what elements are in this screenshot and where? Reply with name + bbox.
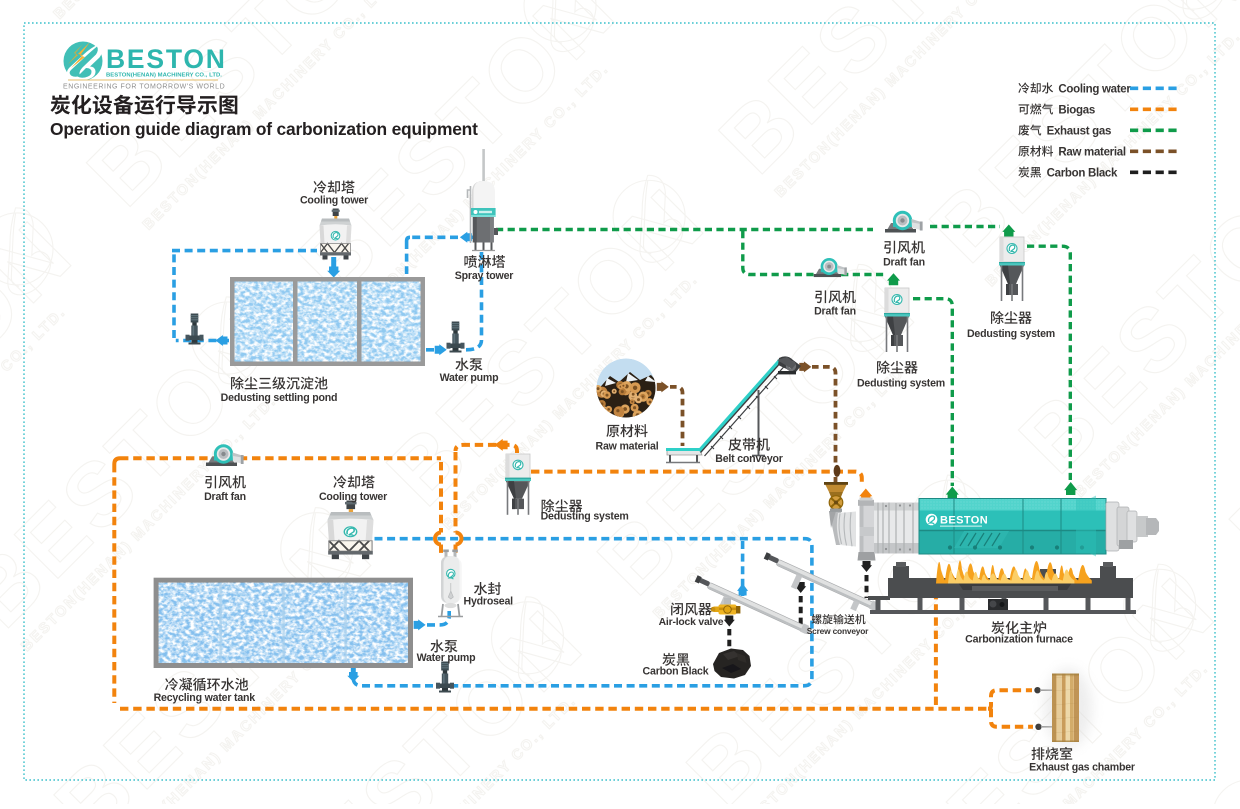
svg-text:Exhaust gas: Exhaust gas	[1047, 126, 1111, 138]
svg-text:Carbonization furnace: Carbonization furnace	[965, 634, 1073, 646]
svg-text:Water pump: Water pump	[440, 372, 500, 384]
svg-text:Recycling water tank: Recycling water tank	[154, 692, 256, 704]
svg-text:Cooling tower: Cooling tower	[319, 491, 387, 503]
svg-text:BESTON(HENAN) MACHINERY CO., L: BESTON(HENAN) MACHINERY CO., LTD.	[106, 73, 222, 79]
svg-text:Dedusting settling pond: Dedusting settling pond	[221, 392, 338, 404]
svg-text:Belt conveyor: Belt conveyor	[715, 453, 783, 465]
svg-text:BESTON: BESTON	[940, 515, 988, 527]
svg-text:Raw material: Raw material	[596, 441, 659, 453]
svg-text:Screw conveyor: Screw conveyor	[807, 626, 869, 636]
svg-text:Exhaust gas chamber: Exhaust gas chamber	[1029, 761, 1135, 773]
svg-text:Air-lock valve: Air-lock valve	[659, 617, 724, 628]
svg-text:Cooling water: Cooling water	[1058, 84, 1131, 96]
svg-text:BESTON: BESTON	[106, 44, 227, 74]
svg-text:Operation guide diagram of car: Operation guide diagram of carbonization…	[50, 119, 478, 139]
svg-text:Draft fan: Draft fan	[204, 491, 246, 503]
svg-text:Dedusting system: Dedusting system	[857, 378, 945, 390]
svg-text:Dedusting system: Dedusting system	[967, 328, 1055, 340]
svg-text:Raw material: Raw material	[1058, 147, 1125, 159]
svg-text:Cooling tower: Cooling tower	[300, 195, 368, 207]
svg-text:Draft fan: Draft fan	[883, 256, 925, 268]
svg-text:Hydroseal: Hydroseal	[464, 595, 514, 607]
svg-text:Water pump: Water pump	[417, 652, 477, 664]
svg-text:Biogas: Biogas	[1058, 105, 1095, 117]
svg-text:Spray tower: Spray tower	[455, 270, 514, 282]
svg-text:Draft fan: Draft fan	[814, 306, 856, 318]
svg-text:Carbon Black: Carbon Black	[643, 666, 709, 678]
svg-text:Dedusting system: Dedusting system	[541, 511, 629, 523]
svg-text:Carbon Black: Carbon Black	[1047, 168, 1118, 180]
svg-text:ENGINEERING FOR TOMORROW'S WOR: ENGINEERING FOR TOMORROW'S WORLD	[63, 84, 225, 91]
